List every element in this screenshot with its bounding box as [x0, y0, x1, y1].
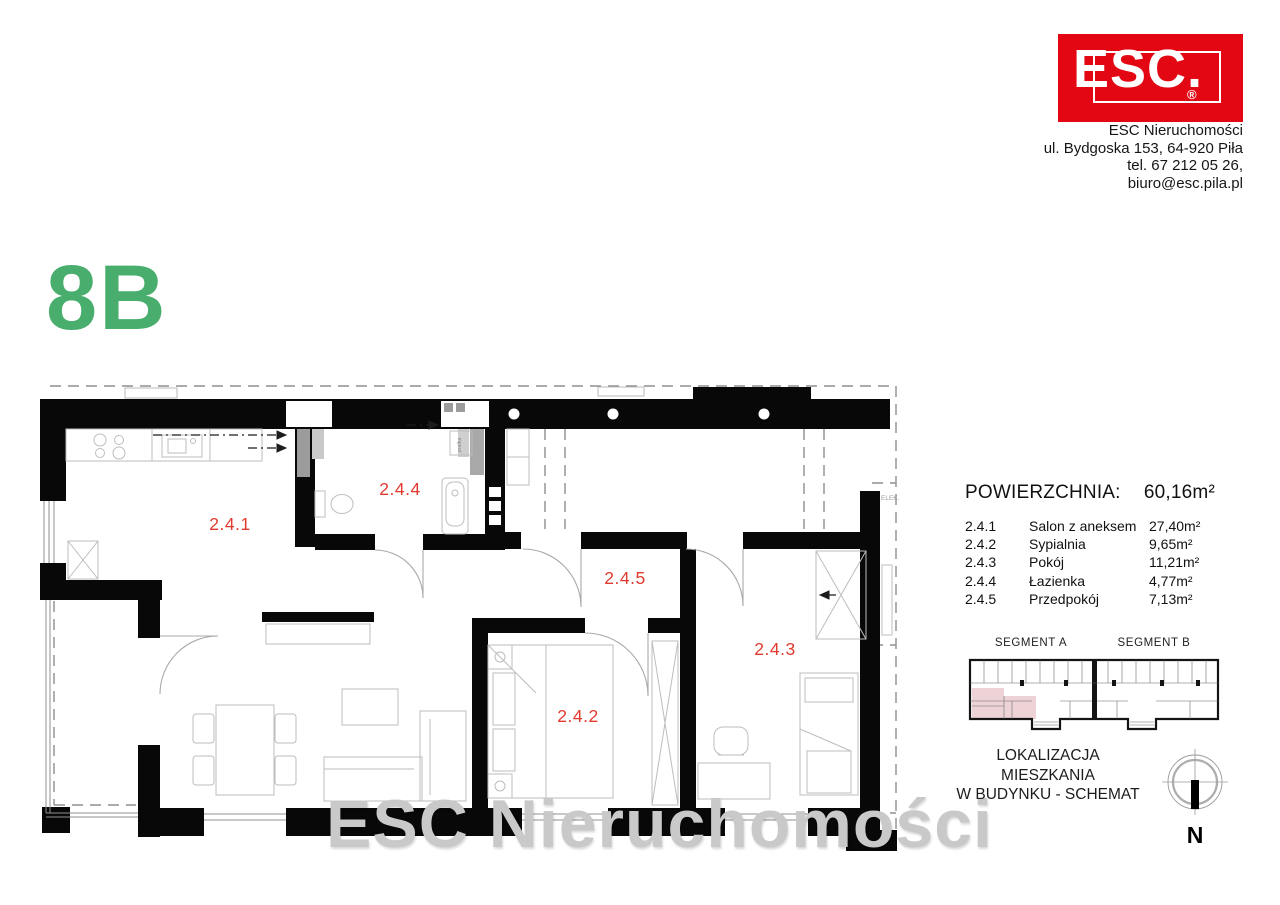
room-no: 2.4.5: [965, 590, 1029, 608]
room-area: 7,13m²: [1149, 590, 1215, 608]
location-caption: LOKALIZACJA MIESZKANIA W BUDYNKU - SCHEM…: [950, 746, 1146, 805]
agency-address: ESC Nieruchomości ul. Bydgoska 153, 64-9…: [943, 122, 1243, 192]
esc-logo-text: ESC.: [1073, 42, 1203, 96]
room-no: 2.4.4: [965, 572, 1029, 590]
upper-storey-furniture: [125, 387, 792, 400]
elek-annotation: ELEK.: [881, 495, 900, 502]
area-row: 2.4.5 Przedpokój 7,13m²: [965, 590, 1215, 608]
room-label-2-4-2: 2.4.2: [557, 706, 598, 726]
room-no: 2.4.1: [965, 517, 1029, 535]
registered-mark: ®: [1187, 87, 1197, 102]
segment-a-label: SEGMENT A: [985, 637, 1077, 649]
compass-needle: [1191, 780, 1199, 809]
room-label-2-4-3: 2.4.3: [754, 639, 795, 659]
room-name: Salon z aneksem: [1029, 517, 1149, 535]
area-row: 2.4.1 Salon z aneksem 27,40m²: [965, 517, 1215, 535]
segment-b-label: SEGMENT B: [1108, 637, 1200, 649]
room-label-2-4-1: 2.4.1: [209, 514, 250, 534]
address-line-name: ESC Nieruchomości: [943, 122, 1243, 140]
north-compass-icon: N: [1150, 742, 1240, 850]
room-label-2-4-5: 2.4.5: [604, 568, 645, 588]
address-line-street: ul. Bydgoska 153, 64-920 Piła: [943, 140, 1243, 158]
watermark: ESC Nieruchomości: [326, 790, 993, 858]
area-row: 2.4.3 Pokój 11,21m²: [965, 553, 1215, 571]
segment-divider-wall: [1092, 660, 1097, 719]
area-table-header: POWIERZCHNIA: 60,16m²: [965, 482, 1215, 504]
room-area: 27,40m²: [1149, 517, 1215, 535]
room-name: Sypialnia: [1029, 535, 1149, 553]
room-name: Pokój: [1029, 553, 1149, 571]
esc-logo-word: ESC: [1073, 39, 1187, 99]
room-label-2-4-4: 2.4.4: [379, 479, 420, 499]
pralka-annotation: pralka: [457, 437, 463, 453]
room-area: 4,77m²: [1149, 572, 1215, 590]
flyer-page: ESC. ® ESC Nieruchomości ul. Bydgoska 15…: [0, 0, 1280, 905]
esc-logo: ESC. ®: [1058, 34, 1243, 122]
floor-plan: pralka ELEK. 2.4.1 2.4.2 2.4.3 2.4.4 2.4…: [30, 383, 905, 863]
room-area: 9,65m²: [1149, 535, 1215, 553]
area-rows: 2.4.1 Salon z aneksem 27,40m² 2.4.2 Sypi…: [965, 517, 1215, 608]
room-area: 11,21m²: [1149, 553, 1215, 571]
room-name: Przedpokój: [1029, 590, 1149, 608]
total-area-value: 60,16m²: [1144, 482, 1215, 504]
room-no: 2.4.3: [965, 553, 1029, 571]
area-row: 2.4.2 Sypialnia 9,65m²: [965, 535, 1215, 553]
area-table: POWIERZCHNIA: 60,16m² 2.4.1 Salon z anek…: [965, 482, 1215, 608]
building-schematic: [962, 651, 1224, 733]
address-line-phone: tel. 67 212 05 26,: [943, 157, 1243, 175]
room-no: 2.4.2: [965, 535, 1029, 553]
room-name: Łazienka: [1029, 572, 1149, 590]
area-row: 2.4.4 Łazienka 4,77m²: [965, 572, 1215, 590]
compass-north-letter: N: [1187, 822, 1204, 848]
location-caption-line2: W BUDYNKU - SCHEMAT: [950, 785, 1146, 805]
area-title: POWIERZCHNIA:: [965, 482, 1121, 504]
address-line-email: biuro@esc.pila.pl: [943, 175, 1243, 193]
location-caption-line1: LOKALIZACJA MIESZKANIA: [950, 746, 1146, 785]
unit-number: 8B: [46, 252, 168, 344]
